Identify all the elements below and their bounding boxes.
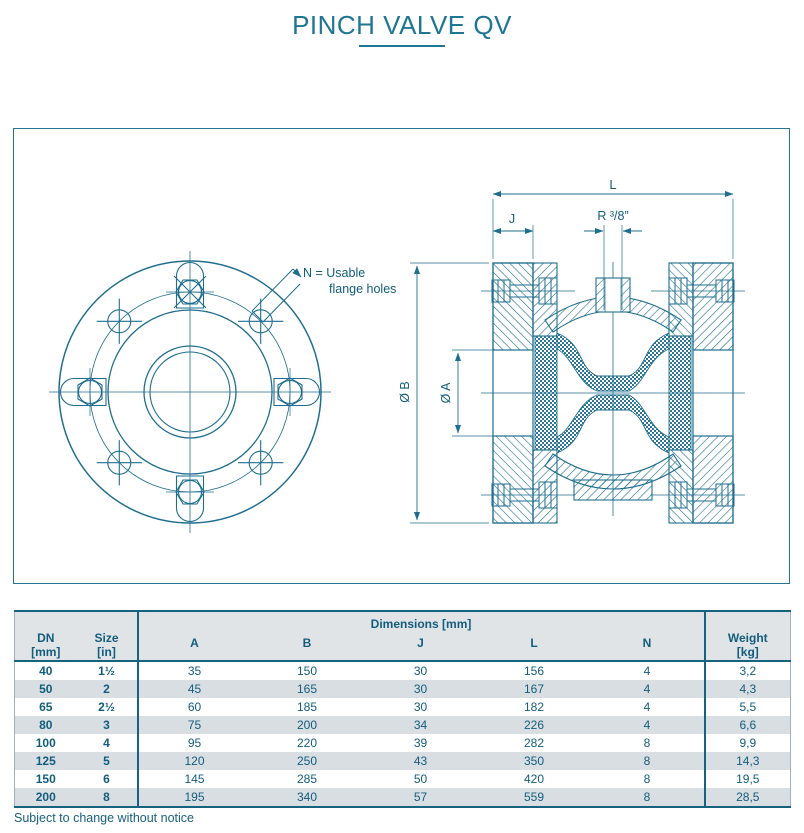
table-cell-dn: 100 — [15, 734, 77, 752]
table-cell-l: 167 — [478, 680, 591, 698]
page-title: PINCH VALVE QV — [292, 10, 512, 41]
table-cell-l: 420 — [478, 770, 591, 788]
table-row: 125512025043350814,3 — [15, 752, 791, 770]
table-cell-j: 50 — [364, 770, 478, 788]
header-col-N: N — [591, 632, 705, 661]
table-cell-a: 45 — [138, 680, 251, 698]
table-cell-a: 95 — [138, 734, 251, 752]
table-cell-w: 5,5 — [705, 698, 791, 716]
section-view — [481, 262, 745, 523]
table-cell-size: 4 — [77, 734, 138, 752]
table-cell-n: 8 — [591, 752, 705, 770]
table-cell-n: 4 — [591, 716, 705, 734]
table-cell-a: 75 — [138, 716, 251, 734]
header-weight-label: Weight — [706, 632, 791, 646]
table-cell-w: 3,2 — [705, 661, 791, 680]
table-cell-j: 30 — [364, 680, 478, 698]
dimension-R38-label: R ³/8” — [597, 209, 628, 223]
body-foot — [574, 480, 652, 500]
dimension-diameter-B-label: Ø B — [398, 381, 412, 403]
header-dn: DN [mm] — [15, 611, 77, 661]
table-cell-l: 282 — [478, 734, 591, 752]
table-cell-b: 340 — [251, 788, 364, 807]
table-cell-size: 6 — [77, 770, 138, 788]
table-body: 401½351503015643,2502451653016744,3652½6… — [15, 661, 791, 807]
table-cell-b: 250 — [251, 752, 364, 770]
table-cell-n: 8 — [591, 734, 705, 752]
dimension-J: J — [493, 212, 533, 259]
header-size: Size [in] — [77, 611, 138, 661]
page-header: PINCH VALVE QV — [0, 0, 804, 47]
table-cell-w: 19,5 — [705, 770, 791, 788]
table-cell-a: 120 — [138, 752, 251, 770]
dimensions-table-section: DN [mm] Size [in] Dimensions [mm] Weight… — [14, 610, 790, 808]
table-row: 502451653016744,3 — [15, 680, 791, 698]
table-cell-dn: 125 — [15, 752, 77, 770]
table-row: 652½601853018245,5 — [15, 698, 791, 716]
table-cell-dn: 65 — [15, 698, 77, 716]
table-cell-dn: 40 — [15, 661, 77, 680]
table-cell-w: 6,6 — [705, 716, 791, 734]
table-cell-a: 60 — [138, 698, 251, 716]
header-weight: Weight [kg] — [705, 611, 791, 661]
table-row: 401½351503015643,2 — [15, 661, 791, 680]
table-cell-size: 1½ — [77, 661, 138, 680]
table-cell-dn: 50 — [15, 680, 77, 698]
flange-holes-note-line2: flange holes — [329, 282, 396, 296]
table-cell-l: 559 — [478, 788, 591, 807]
header-dn-unit: [mm] — [15, 646, 77, 660]
table-cell-size: 3 — [77, 716, 138, 734]
footer-note: Subject to change without notice — [14, 811, 194, 825]
table-cell-l: 182 — [478, 698, 591, 716]
header-col-J: J — [364, 632, 478, 661]
flange-holes-note-line1: N = Usable — [303, 266, 365, 280]
table-row: 200819534057559828,5 — [15, 788, 791, 807]
header-size-unit: [in] — [77, 646, 137, 660]
table-cell-w: 28,5 — [705, 788, 791, 807]
table-cell-j: 57 — [364, 788, 478, 807]
header-col-L: L — [478, 632, 591, 661]
technical-drawing-panel: N = Usable flange holes — [13, 128, 790, 584]
header-col-B: B — [251, 632, 364, 661]
header-col-A: A — [138, 632, 251, 661]
table-cell-j: 39 — [364, 734, 478, 752]
table-cell-size: 5 — [77, 752, 138, 770]
table-cell-b: 185 — [251, 698, 364, 716]
table-cell-w: 14,3 — [705, 752, 791, 770]
header-dimensions: Dimensions [mm] — [138, 611, 705, 632]
table-cell-b: 165 — [251, 680, 364, 698]
dimensions-table: DN [mm] Size [in] Dimensions [mm] Weight… — [14, 610, 791, 808]
table-row: 803752003422646,6 — [15, 716, 791, 734]
header-size-label: Size — [77, 632, 137, 646]
dimension-L-label: L — [609, 177, 616, 192]
table-row: 150614528550420819,5 — [15, 770, 791, 788]
table-cell-w: 4,3 — [705, 680, 791, 698]
table-cell-j: 30 — [364, 661, 478, 680]
table-cell-l: 156 — [478, 661, 591, 680]
flange-holes-callout-leader — [252, 269, 301, 322]
table-cell-dn: 150 — [15, 770, 77, 788]
table-cell-dn: 200 — [15, 788, 77, 807]
front-flange-view: N = Usable flange holes — [49, 251, 396, 533]
table-cell-j: 34 — [364, 716, 478, 734]
header-dn-label: DN — [15, 632, 77, 646]
dimension-J-label: J — [509, 212, 515, 226]
table-cell-dn: 80 — [15, 716, 77, 734]
table-cell-b: 285 — [251, 770, 364, 788]
header-weight-unit: [kg] — [706, 646, 791, 660]
table-cell-n: 4 — [591, 698, 705, 716]
table-cell-n: 4 — [591, 680, 705, 698]
table-cell-n: 8 — [591, 788, 705, 807]
pinch-valve-drawing: N = Usable flange holes — [14, 129, 791, 583]
table-cell-b: 220 — [251, 734, 364, 752]
table-cell-size: 2 — [77, 680, 138, 698]
table-cell-a: 35 — [138, 661, 251, 680]
table-cell-b: 200 — [251, 716, 364, 734]
table-cell-n: 8 — [591, 770, 705, 788]
table-cell-a: 145 — [138, 770, 251, 788]
table-cell-size: 2½ — [77, 698, 138, 716]
table-cell-l: 226 — [478, 716, 591, 734]
table-cell-w: 9,9 — [705, 734, 791, 752]
air-connection-boss — [596, 278, 630, 312]
dimension-diameter-A-label: Ø A — [439, 382, 453, 404]
table-header: DN [mm] Size [in] Dimensions [mm] Weight… — [15, 611, 791, 661]
table-cell-b: 150 — [251, 661, 364, 680]
table-cell-j: 43 — [364, 752, 478, 770]
table-row: 1004952203928289,9 — [15, 734, 791, 752]
table-cell-size: 8 — [77, 788, 138, 807]
title-underline — [359, 45, 445, 47]
table-cell-n: 4 — [591, 661, 705, 680]
table-cell-a: 195 — [138, 788, 251, 807]
table-cell-l: 350 — [478, 752, 591, 770]
table-cell-j: 30 — [364, 698, 478, 716]
